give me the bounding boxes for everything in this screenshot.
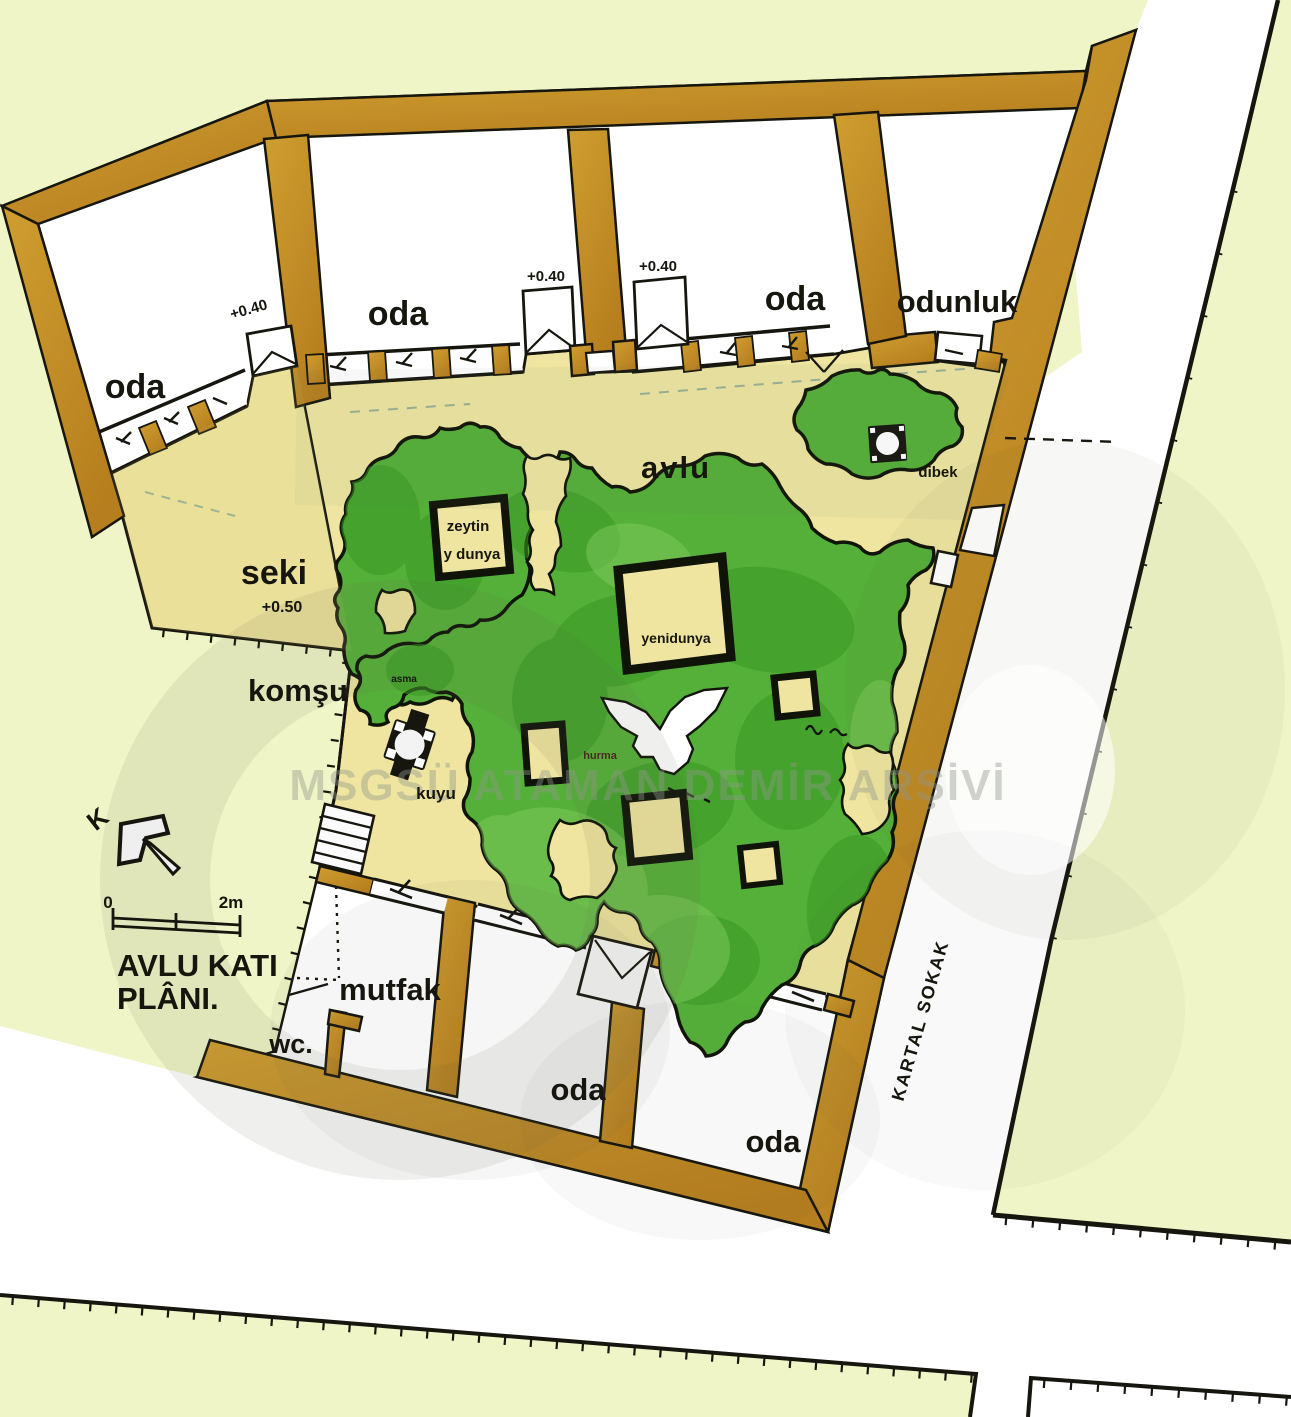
svg-text:komşu: komşu [248,673,348,708]
svg-text:+0.40: +0.40 [527,268,565,285]
svg-text:y dunya: y dunya [444,546,501,563]
svg-text:oda: oda [550,1072,606,1107]
svg-text:AVLU KATI: AVLU KATI [117,948,278,983]
svg-text:MSGSÜ ATAMAN DEMİR ARŞİVİ: MSGSÜ ATAMAN DEMİR ARŞİVİ [289,761,1006,810]
svg-text:mutfak: mutfak [339,972,441,1007]
svg-text:+0.40: +0.40 [639,258,677,275]
svg-text:oda: oda [105,368,167,406]
svg-text:yenidunya: yenidunya [641,630,710,646]
svg-text:hurma: hurma [583,750,618,762]
svg-text:oda: oda [368,295,430,333]
svg-text:oda: oda [745,1124,801,1159]
svg-text:odunluk: odunluk [897,284,1018,319]
svg-text:+0.50: +0.50 [262,599,303,616]
svg-text:zeytin: zeytin [447,518,490,535]
svg-text:kuyu: kuyu [416,784,456,803]
svg-text:PLÂNI.: PLÂNI. [117,980,219,1016]
svg-text:avlu: avlu [641,450,711,485]
svg-text:oda: oda [765,280,827,318]
svg-text:2m: 2m [219,893,244,912]
svg-text:asma: asma [391,674,417,685]
svg-text:wc.: wc. [268,1029,313,1059]
svg-text:seki: seki [241,554,307,592]
svg-text:dibek: dibek [918,464,958,481]
svg-text:0: 0 [103,893,112,912]
